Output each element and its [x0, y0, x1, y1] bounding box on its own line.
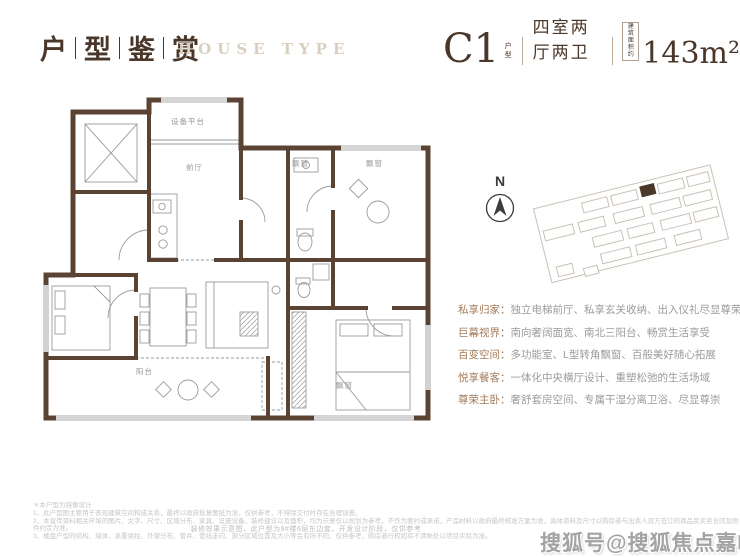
unit-divider: [612, 37, 613, 65]
feature-row: 私享归家：独立电梯前厅、私享玄关收纳、出入仪礼尽显尊荣: [458, 299, 738, 322]
feature-row: 悦享餐客：一体化中央横厅设计、重塑松弛的生活场域: [458, 367, 738, 390]
title-char: 户: [40, 28, 67, 67]
feature-text: 南向奢阔面宽、南北三阳台、畅赏生活享受: [511, 327, 711, 339]
feature-text: 独立电梯前厅、私享玄关收纳、出入仪礼尽显尊荣: [511, 304, 740, 316]
feature-text: 一体化中央横厅设计、重塑松弛的生活场域: [511, 372, 711, 384]
north-compass: N: [482, 172, 522, 230]
feature-row: 巨幕视界：南向奢阔面宽、南北三阳台、畅赏生活享受: [458, 322, 738, 345]
room-label-bay-window-1: 飘窗: [292, 158, 309, 169]
feature-label: 私享归家：: [458, 304, 511, 316]
area-value: 143m²: [642, 40, 740, 68]
feature-text: 奢舒套房空间、专属干湿分离卫浴、尽显尊崇: [511, 394, 721, 406]
site-plan: [530, 160, 740, 295]
room-label-front-hall: 前厅: [186, 162, 203, 173]
feature-row: 百变空间：多功能室、L型转角飘窗、百般美好随心拓展: [458, 344, 738, 367]
feature-label: 百变空间：: [458, 349, 511, 361]
title-char: 型: [84, 28, 111, 67]
disclaimer-title: ＊本户型为镜像设计: [33, 502, 739, 510]
area-label-line1: 建筑: [628, 24, 634, 37]
feature-label: 巨幕视界：: [458, 327, 511, 339]
page-subtitle: HOUSE TYPE: [178, 40, 350, 58]
room-label-bay-window-3: 飘窗: [336, 380, 353, 391]
title-separator: [119, 37, 120, 59]
title-separator: [163, 37, 164, 59]
area-label: 建筑 面积约: [622, 22, 639, 61]
room-label-bay-window-2: 飘窗: [366, 158, 383, 169]
site-highlighted-unit: [639, 183, 656, 197]
feature-label: 悦享餐客：: [458, 372, 511, 384]
room-label-balcony: 阳台: [136, 366, 153, 377]
feature-text: 多功能室、L型转角飘窗、百般美好随心拓展: [511, 349, 716, 361]
title-char: 鉴: [128, 28, 155, 67]
unit-layout: 四室两厅两卫: [533, 13, 602, 63]
area-label-line2: 面积约: [628, 38, 634, 58]
page-title: 户 型 鉴 赏: [40, 28, 199, 67]
compass-needle-icon: [494, 197, 507, 216]
room-label-equipment-platform: 设备平台: [171, 116, 205, 127]
feature-list: 私享归家：独立电梯前厅、私享玄关收纳、出入仪礼尽显尊荣 巨幕视界：南向奢阔面宽、…: [458, 299, 738, 412]
floorplan-drawing: [36, 90, 448, 468]
title-separator: [75, 37, 76, 59]
unit-code: C1: [443, 30, 499, 68]
watermark: 搜狐号@搜狐焦点嘉峪关站: [540, 527, 740, 557]
feature-row: 尊荣主卧：奢舒套房空间、专属干湿分离卫浴、尽显尊崇: [458, 389, 738, 412]
compass-n-label: N: [495, 173, 505, 189]
floorplan: 设备平台 前厅 飘窗 飘窗 阳台 飘窗 装修效果示意图，此户型为9#楼6层东边套…: [36, 90, 448, 468]
unit-info: C1 户型 四室两厅两卫 建筑 面积约 143m²: [443, 26, 740, 68]
unit-code-label: 户型: [502, 42, 512, 64]
unit-divider: [522, 37, 523, 65]
disclaimer-line: 1、此户型图主要用于表现建筑空间构成关系，最终以政府批复图纸为准，仅供参考，不排…: [33, 510, 739, 518]
feature-label: 尊荣主卧：: [458, 394, 511, 406]
